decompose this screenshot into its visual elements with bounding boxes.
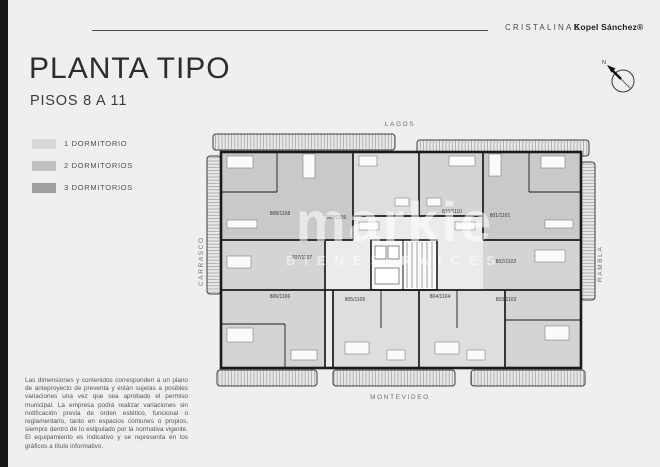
legend-swatch-1dorm bbox=[32, 139, 56, 149]
legend-swatch-2dorm bbox=[32, 161, 56, 171]
unit-label-802: 802/1102 bbox=[496, 259, 517, 265]
unit-label-809: 809/1109 bbox=[326, 215, 347, 221]
unit-label-805: 805/1105 bbox=[345, 297, 366, 303]
unit-label-806: 806/1106 bbox=[270, 294, 291, 300]
street-label-carrasco: CARRASCO bbox=[198, 234, 205, 286]
unit-label-807: 807/1107 bbox=[292, 255, 313, 261]
page-subtitle: PISOS 8 A 11 bbox=[30, 93, 127, 109]
legend-label: 3 DORMITORIOS bbox=[64, 183, 133, 192]
unit-label-803: 803/1103 bbox=[496, 297, 517, 303]
left-edge-bar bbox=[0, 0, 8, 467]
legend-swatch-3dorm bbox=[32, 183, 56, 193]
legend-item-1-dormitorio: 1 DORMITORIO bbox=[32, 138, 133, 149]
header-rule bbox=[92, 30, 488, 31]
legend: 1 DORMITORIO 2 DORMITORIOS 3 DORMITORIOS bbox=[32, 138, 133, 204]
street-label-rambla: RAMBLA bbox=[597, 236, 604, 282]
brochure-page: { "header": { "brand_left": "CRISTALINAS… bbox=[0, 0, 660, 467]
unit-label-804: 804/1104 bbox=[430, 294, 451, 300]
north-compass-icon: N bbox=[597, 54, 643, 100]
unit-label-810: 810/1110 bbox=[442, 209, 462, 215]
legal-disclaimer: Las dimensiones y contenidos corresponde… bbox=[25, 377, 188, 451]
brand-cristalinas: CRISTALINAS bbox=[505, 23, 581, 32]
legend-item-3-dormitorios: 3 DORMITORIOS bbox=[32, 182, 133, 193]
stair-core bbox=[371, 240, 437, 290]
street-label-lagos: LAGOS bbox=[360, 121, 440, 128]
page-title: PLANTA TIPO bbox=[29, 52, 231, 86]
legend-label: 1 DORMITORIO bbox=[64, 139, 127, 148]
unit-label-801: 801/1101 bbox=[490, 213, 511, 219]
floor-plan: 808/1108 809/1109 810/1110 801/1101 807/… bbox=[205, 128, 597, 395]
brand-kopel-sanchez: Kopel Sánchez® bbox=[574, 22, 644, 32]
street-label-montevideo: MONTEVIDEO bbox=[355, 394, 445, 401]
unit-label-808: 808/1108 bbox=[270, 211, 291, 217]
legend-item-2-dormitorios: 2 DORMITORIOS bbox=[32, 160, 133, 171]
compass-north-label: N bbox=[602, 60, 606, 66]
legend-label: 2 DORMITORIOS bbox=[64, 161, 133, 170]
